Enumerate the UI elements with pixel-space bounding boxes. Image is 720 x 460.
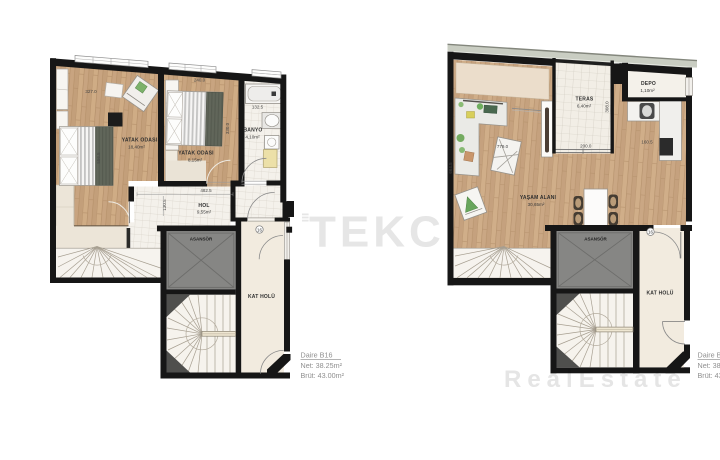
svg-text:30,65m²: 30,65m² [528, 202, 545, 207]
svg-text:200.0: 200.0 [580, 144, 592, 149]
svg-text:Net: 38.25m²: Net: 38.25m² [301, 361, 343, 370]
svg-text:160.5: 160.5 [641, 140, 653, 145]
svg-text:6,40m²: 6,40m² [577, 103, 592, 108]
svg-text:Net: 38.25m²: Net: 38.25m² [698, 361, 720, 370]
svg-text:YATAK ODASI: YATAK ODASI [178, 151, 214, 157]
svg-text:Daire B15: Daire B15 [698, 351, 720, 360]
svg-text:1,10m²: 1,10m² [640, 88, 655, 93]
svg-text:132.5: 132.5 [252, 105, 264, 110]
svg-text:4,10m²: 4,10m² [245, 134, 260, 139]
svg-text:16: 16 [257, 227, 262, 232]
svg-text:RealEstate: RealEstate [504, 366, 687, 393]
svg-text:BANYO: BANYO [243, 128, 262, 134]
svg-text:KAT HOLÜ: KAT HOLÜ [248, 293, 275, 300]
svg-text:779.0: 779.0 [497, 144, 509, 149]
svg-text:KAT HOLÜ: KAT HOLÜ [646, 290, 673, 297]
svg-text:556.5: 556.5 [96, 152, 101, 164]
svg-text:ASANSÖR: ASANSÖR [190, 236, 213, 242]
svg-text:YAŞAM ALANI: YAŞAM ALANI [520, 195, 557, 201]
svg-text:308.0: 308.0 [604, 101, 609, 113]
svg-text:YATAK ODASI: YATAK ODASI [122, 138, 158, 144]
svg-text:Brüt: 43.00m²: Brüt: 43.00m² [698, 371, 720, 380]
svg-text:9,55m²: 9,55m² [197, 209, 212, 214]
svg-text:18,40m²: 18,40m² [128, 144, 145, 149]
svg-text:16: 16 [648, 230, 653, 235]
svg-text:8,15m²: 8,15m² [188, 157, 203, 162]
svg-text:DEPO: DEPO [641, 81, 656, 87]
svg-text:ASANSÖR: ASANSÖR [584, 236, 607, 242]
svg-text:327.0: 327.0 [85, 89, 97, 94]
svg-text:Daire B16: Daire B16 [301, 351, 333, 360]
svg-text:TERAS: TERAS [576, 97, 594, 103]
svg-text:Brüt: 43.00m²: Brüt: 43.00m² [301, 371, 345, 380]
svg-text:482.5: 482.5 [200, 188, 212, 193]
svg-text:664.5: 664.5 [448, 162, 453, 174]
svg-text:HOL: HOL [198, 203, 209, 209]
svg-text:240.0: 240.0 [194, 78, 206, 83]
svg-text:330.0: 330.0 [225, 122, 230, 134]
